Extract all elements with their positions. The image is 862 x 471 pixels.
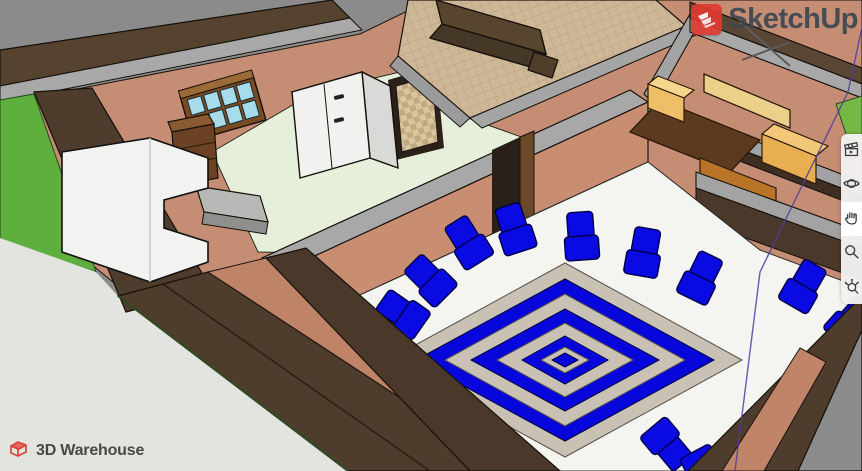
model-viewport[interactable]: SketchUp 3D Warehouse — [0, 0, 862, 471]
zoom-button[interactable] — [841, 236, 862, 270]
scenes-button[interactable] — [841, 134, 862, 168]
orbit-button[interactable] — [841, 168, 862, 202]
orbit-icon — [843, 175, 860, 195]
magnifier-arrows-icon — [843, 277, 860, 297]
refrigerator — [292, 72, 398, 178]
viewer-toolbar — [841, 134, 862, 304]
hand-icon — [843, 209, 860, 229]
zoom-extents-button[interactable] — [841, 270, 862, 304]
clapperboard-icon — [843, 141, 860, 161]
magnifier-icon — [843, 243, 860, 263]
house-model-render — [0, 0, 862, 471]
pan-button[interactable] — [841, 202, 862, 236]
